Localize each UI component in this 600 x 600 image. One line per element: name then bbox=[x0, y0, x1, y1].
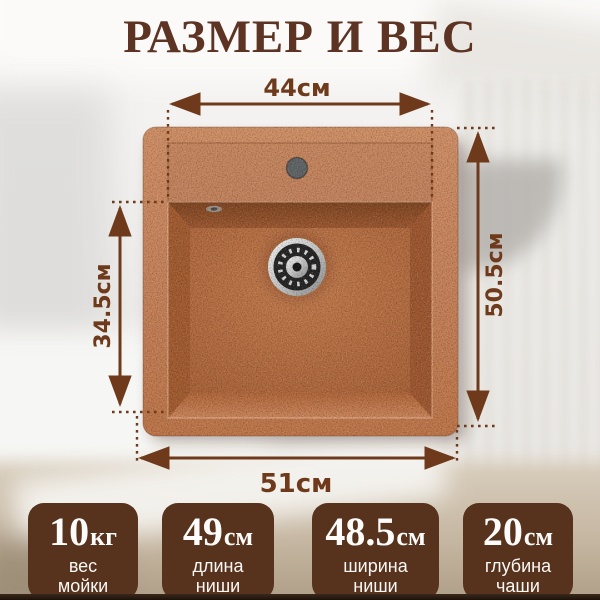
spec-number: 48.5 bbox=[325, 509, 395, 554]
dim-bottom-label: 51см bbox=[260, 469, 333, 499]
spec-box-weight: 10кг весмойки bbox=[28, 503, 138, 600]
spec-unit: см bbox=[396, 522, 425, 551]
spec-value: 48.5см bbox=[312, 512, 439, 552]
spec-value: 10кг bbox=[28, 512, 138, 552]
spec-number: 10 bbox=[49, 509, 89, 554]
spec-label-line1: длина bbox=[192, 556, 243, 576]
spec-number: 20 bbox=[483, 509, 523, 554]
dim-top-label: 44см bbox=[263, 74, 330, 102]
spec-box-niche-width: 48.5см ширинаниши bbox=[312, 503, 439, 600]
spec-value: 49см bbox=[162, 512, 274, 552]
spec-unit: см bbox=[224, 522, 253, 551]
spec-number: 49 bbox=[183, 509, 223, 554]
bottom-dark-strip bbox=[0, 594, 600, 600]
granite-speckle-texture bbox=[143, 127, 458, 436]
dim-left-label: 34.5см bbox=[91, 263, 116, 348]
spec-unit: кг bbox=[90, 522, 117, 551]
spec-box-niche-length: 49см длинаниши bbox=[162, 503, 274, 600]
spec-label: длинаниши bbox=[162, 556, 274, 597]
spec-label-line1: вес bbox=[69, 556, 97, 576]
spec-box-bowl-depth: 20см глубиначаши bbox=[463, 503, 573, 600]
spec-label-line1: глубина bbox=[485, 556, 551, 576]
sink-illustration bbox=[143, 127, 458, 436]
spec-label: глубиначаши bbox=[463, 556, 573, 597]
product-infographic: РАЗМЕР И ВЕС bbox=[0, 0, 600, 600]
spec-label-line1: ширина bbox=[343, 556, 408, 576]
spec-label: ширинаниши bbox=[312, 556, 439, 597]
spec-label: весмойки bbox=[28, 556, 138, 597]
dim-right-label: 50.5см bbox=[483, 232, 508, 317]
spec-value: 20см bbox=[463, 512, 573, 552]
spec-unit: см bbox=[524, 522, 553, 551]
